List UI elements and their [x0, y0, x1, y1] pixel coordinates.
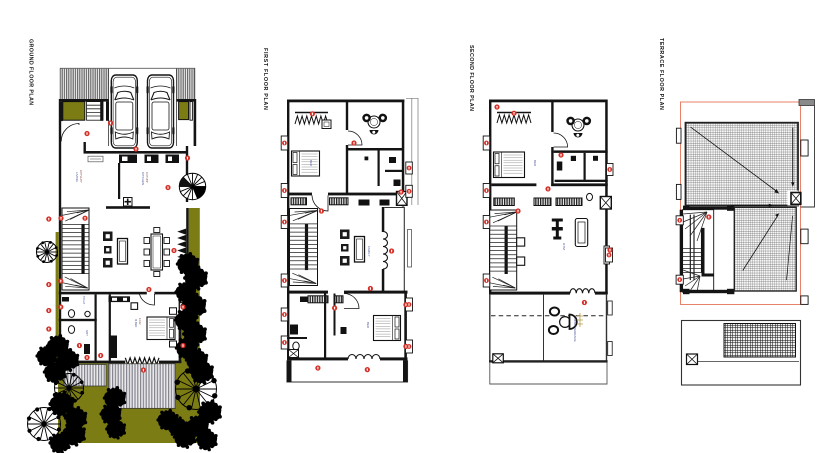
- svg-text:KITCHEN: KITCHEN: [141, 172, 145, 185]
- svg-text:FIRST FLOOR PLAN: FIRST FLOOR PLAN: [262, 48, 268, 111]
- svg-text:11'0"x8'6": 11'0"x8'6": [145, 172, 149, 183]
- svg-text:14x12: 14x12: [138, 318, 141, 325]
- svg-text:LIVING: LIVING: [75, 172, 79, 183]
- svg-text:FAMILY: FAMILY: [367, 246, 371, 256]
- svg-text:SECOND FLOOR PLAN: SECOND FLOOR PLAN: [468, 45, 474, 111]
- svg-text:BATH: BATH: [85, 330, 88, 336]
- svg-text:BED: BED: [309, 160, 313, 167]
- svg-text:TOILET: TOILET: [82, 296, 85, 305]
- svg-text:GROUND FLOOR PLAN: GROUND FLOOR PLAN: [28, 39, 34, 105]
- svg-text:M.BED: M.BED: [134, 319, 138, 327]
- svg-text:BED: BED: [533, 160, 537, 167]
- svg-text:OPEN TERRACE: OPEN TERRACE: [573, 318, 577, 342]
- svg-text:16'0"x12'0": 16'0"x12'0": [79, 170, 83, 183]
- svg-text:BED: BED: [366, 322, 370, 329]
- svg-text:GYM: GYM: [562, 243, 566, 250]
- svg-text:TERRACE FLOOR PLAN: TERRACE FLOOR PLAN: [658, 38, 664, 111]
